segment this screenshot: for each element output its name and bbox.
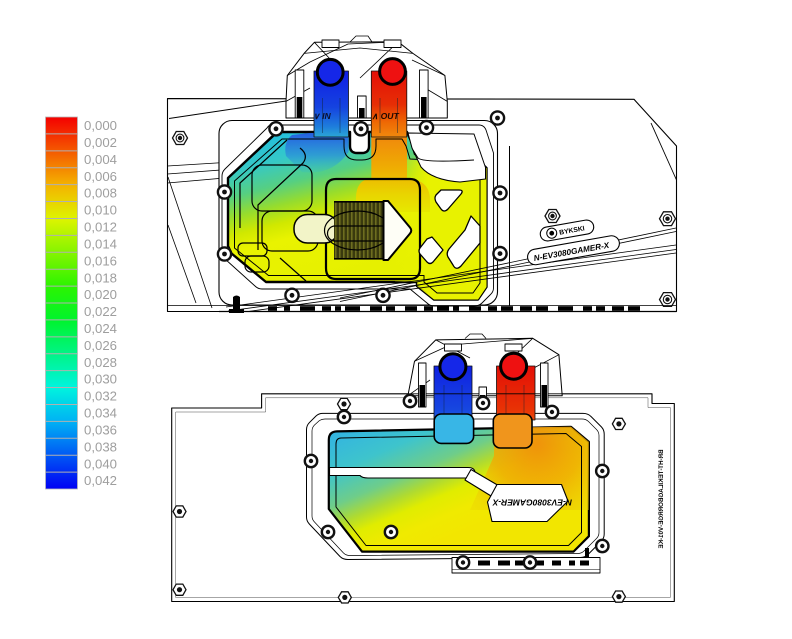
svg-text:0,024: 0,024 bbox=[84, 321, 117, 336]
svg-text:0,022: 0,022 bbox=[84, 304, 117, 319]
svg-text:0,006: 0,006 bbox=[84, 169, 117, 184]
svg-text:N-EV3080GAMER-X: N-EV3080GAMER-X bbox=[491, 498, 572, 508]
svg-text:0,042: 0,042 bbox=[84, 473, 117, 488]
svg-text:0,000: 0,000 bbox=[84, 118, 117, 133]
svg-text:0,018: 0,018 bbox=[84, 270, 117, 285]
svg-text:0,040: 0,040 bbox=[84, 456, 117, 471]
svg-text:0,020: 0,020 bbox=[84, 287, 117, 302]
svg-text:0,002: 0,002 bbox=[84, 135, 117, 150]
svg-text:∨ IN: ∨ IN bbox=[313, 111, 331, 121]
svg-text:0,028: 0,028 bbox=[84, 355, 117, 370]
svg-text:0,004: 0,004 bbox=[84, 152, 117, 167]
svg-text:0,032: 0,032 bbox=[84, 389, 117, 404]
svg-text:0,008: 0,008 bbox=[84, 186, 117, 201]
svg-text:0,014: 0,014 bbox=[84, 236, 117, 251]
svg-text:0,026: 0,026 bbox=[84, 338, 117, 353]
svg-text:0,036: 0,036 bbox=[84, 422, 117, 437]
svg-text:0,012: 0,012 bbox=[84, 220, 117, 235]
svg-text:0,038: 0,038 bbox=[84, 439, 117, 454]
svg-text:0,010: 0,010 bbox=[84, 203, 117, 218]
svg-text:BR-HT-TEKILAGBORRGE-V01-KE: BR-HT-TEKILAGBORRGE-V01-KE bbox=[658, 449, 665, 548]
svg-text:0,016: 0,016 bbox=[84, 253, 117, 268]
svg-text:0,030: 0,030 bbox=[84, 372, 117, 387]
svg-text:0,034: 0,034 bbox=[84, 406, 117, 421]
svg-text:∧ OUT: ∧ OUT bbox=[372, 111, 400, 121]
